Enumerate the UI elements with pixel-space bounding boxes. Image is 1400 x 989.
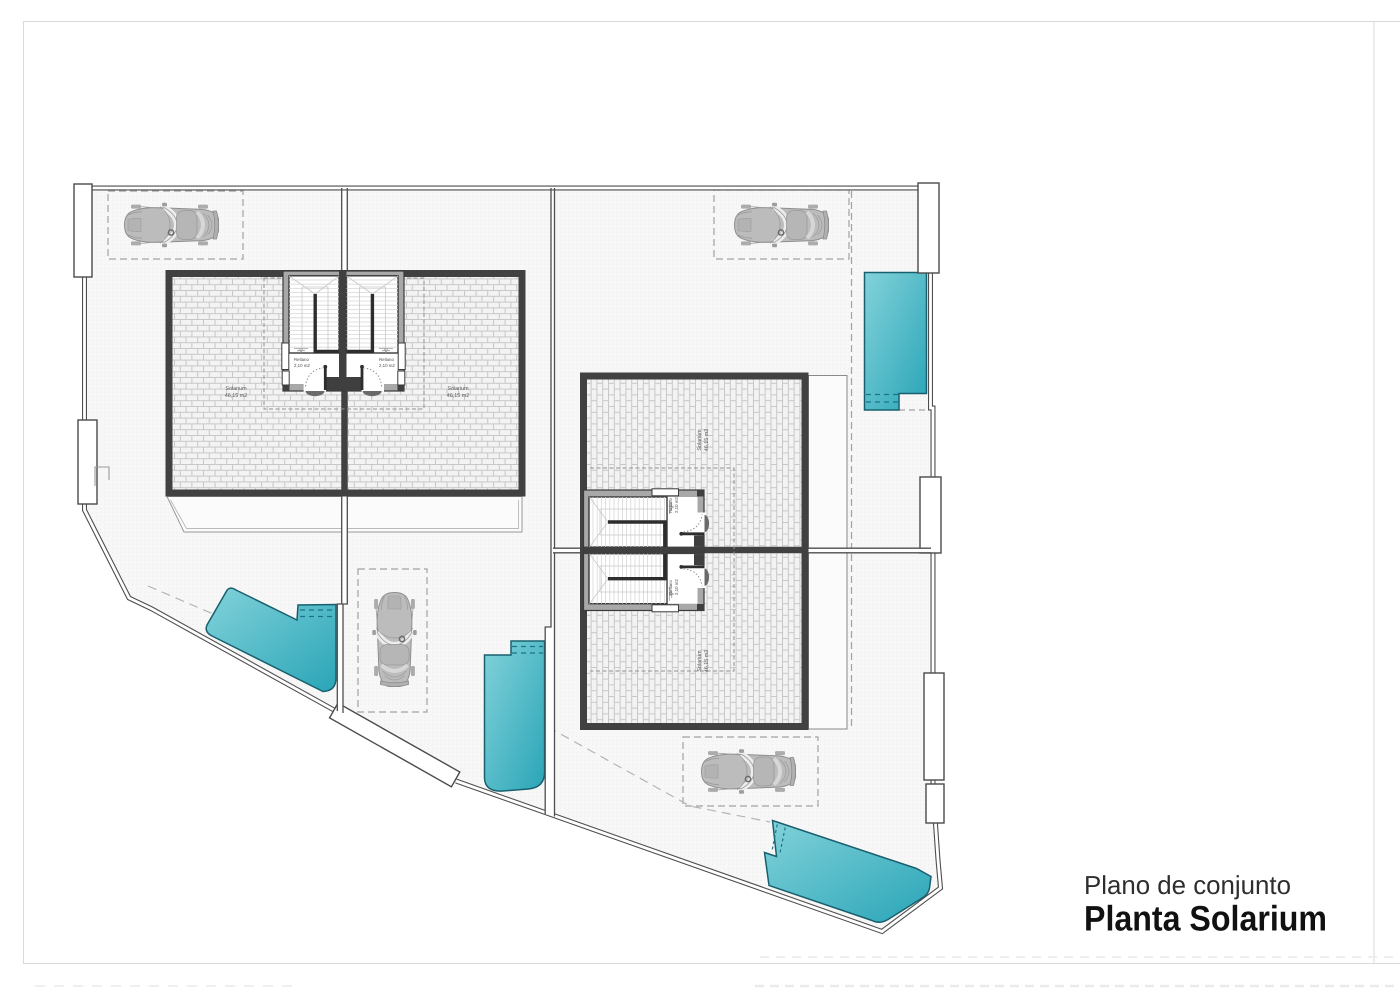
svg-text:46,15 m2: 46,15 m2 — [447, 393, 469, 399]
svg-text:46,15 m2: 46,15 m2 — [225, 393, 247, 399]
svg-text:Rellano: Rellano — [668, 580, 673, 595]
svg-text:2,10 m2: 2,10 m2 — [674, 497, 679, 513]
svg-text:Rellano: Rellano — [668, 498, 673, 513]
svg-text:Rellano: Rellano — [379, 357, 394, 362]
svg-text:46,15 m2: 46,15 m2 — [704, 429, 710, 451]
svg-text:Solarium: Solarium — [697, 429, 703, 451]
svg-text:2,10 m2: 2,10 m2 — [294, 363, 310, 368]
svg-text:2,10 m2: 2,10 m2 — [379, 363, 395, 368]
svg-text:46,15 m2: 46,15 m2 — [704, 650, 710, 672]
svg-text:Solarium: Solarium — [225, 386, 247, 392]
svg-text:Plano de conjunto: Plano de conjunto — [1084, 870, 1291, 900]
svg-text:2,10 m2: 2,10 m2 — [674, 579, 679, 595]
svg-text:Solarium: Solarium — [697, 650, 703, 672]
svg-text:Rellano: Rellano — [294, 357, 309, 362]
svg-text:Solarium: Solarium — [447, 386, 469, 392]
svg-text:Planta Solarium: Planta Solarium — [1084, 899, 1327, 939]
